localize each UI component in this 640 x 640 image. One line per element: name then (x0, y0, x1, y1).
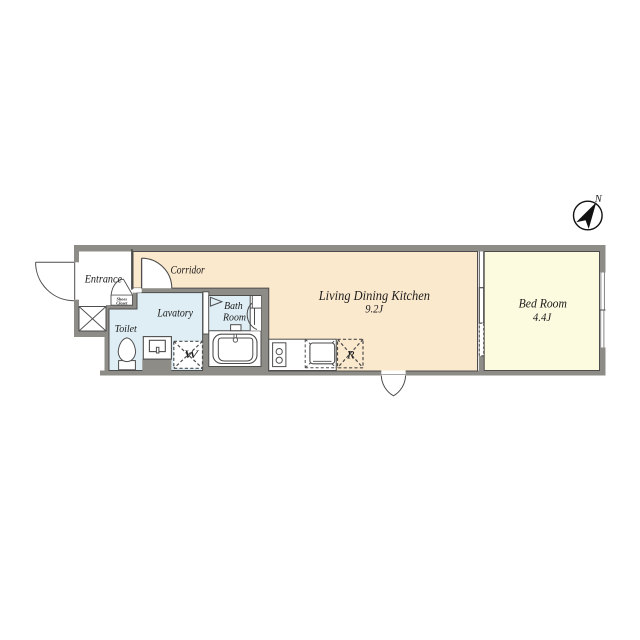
svg-text:Toilet: Toilet (115, 324, 138, 335)
svg-text:Lavatory: Lavatory (157, 308, 194, 320)
svg-text:R: R (346, 347, 355, 361)
svg-text:Corridor: Corridor (170, 264, 205, 276)
svg-text:Closet: Closet (116, 301, 128, 306)
svg-text:Room: Room (222, 312, 246, 323)
svg-text:W: W (184, 347, 200, 361)
svg-text:Entrance: Entrance (84, 273, 122, 285)
svg-text:9.2J: 9.2J (365, 302, 383, 316)
svg-text:4.4J: 4.4J (533, 310, 552, 324)
svg-text:Bed Room: Bed Room (519, 296, 567, 311)
svg-text:N: N (594, 194, 603, 205)
svg-text:Bath: Bath (224, 301, 243, 312)
svg-text:Living Dining Kitchen: Living Dining Kitchen (318, 288, 430, 303)
